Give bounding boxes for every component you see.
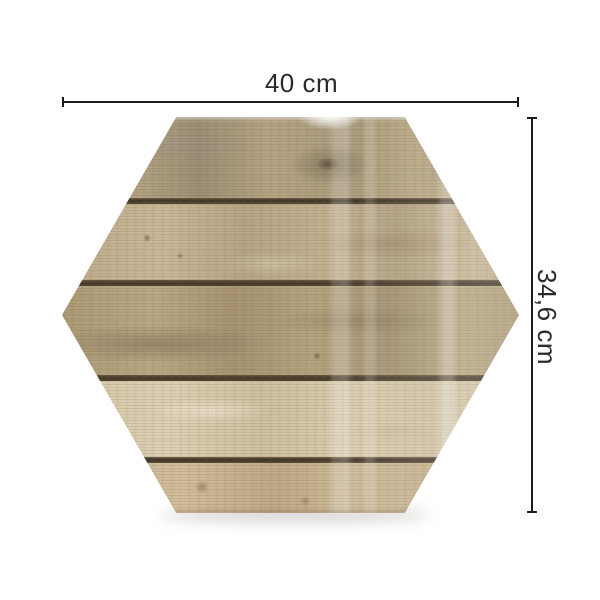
hexagon-wood-panel <box>62 117 519 513</box>
height-dimension-label: 34,6 cm <box>534 265 562 369</box>
product-image-stage: 40 cm 34,6 cm <box>0 0 600 600</box>
width-dimension-label: 40 cm <box>62 68 519 99</box>
width-dimension-line <box>62 101 519 103</box>
glass-reflection-overlay <box>62 117 519 513</box>
